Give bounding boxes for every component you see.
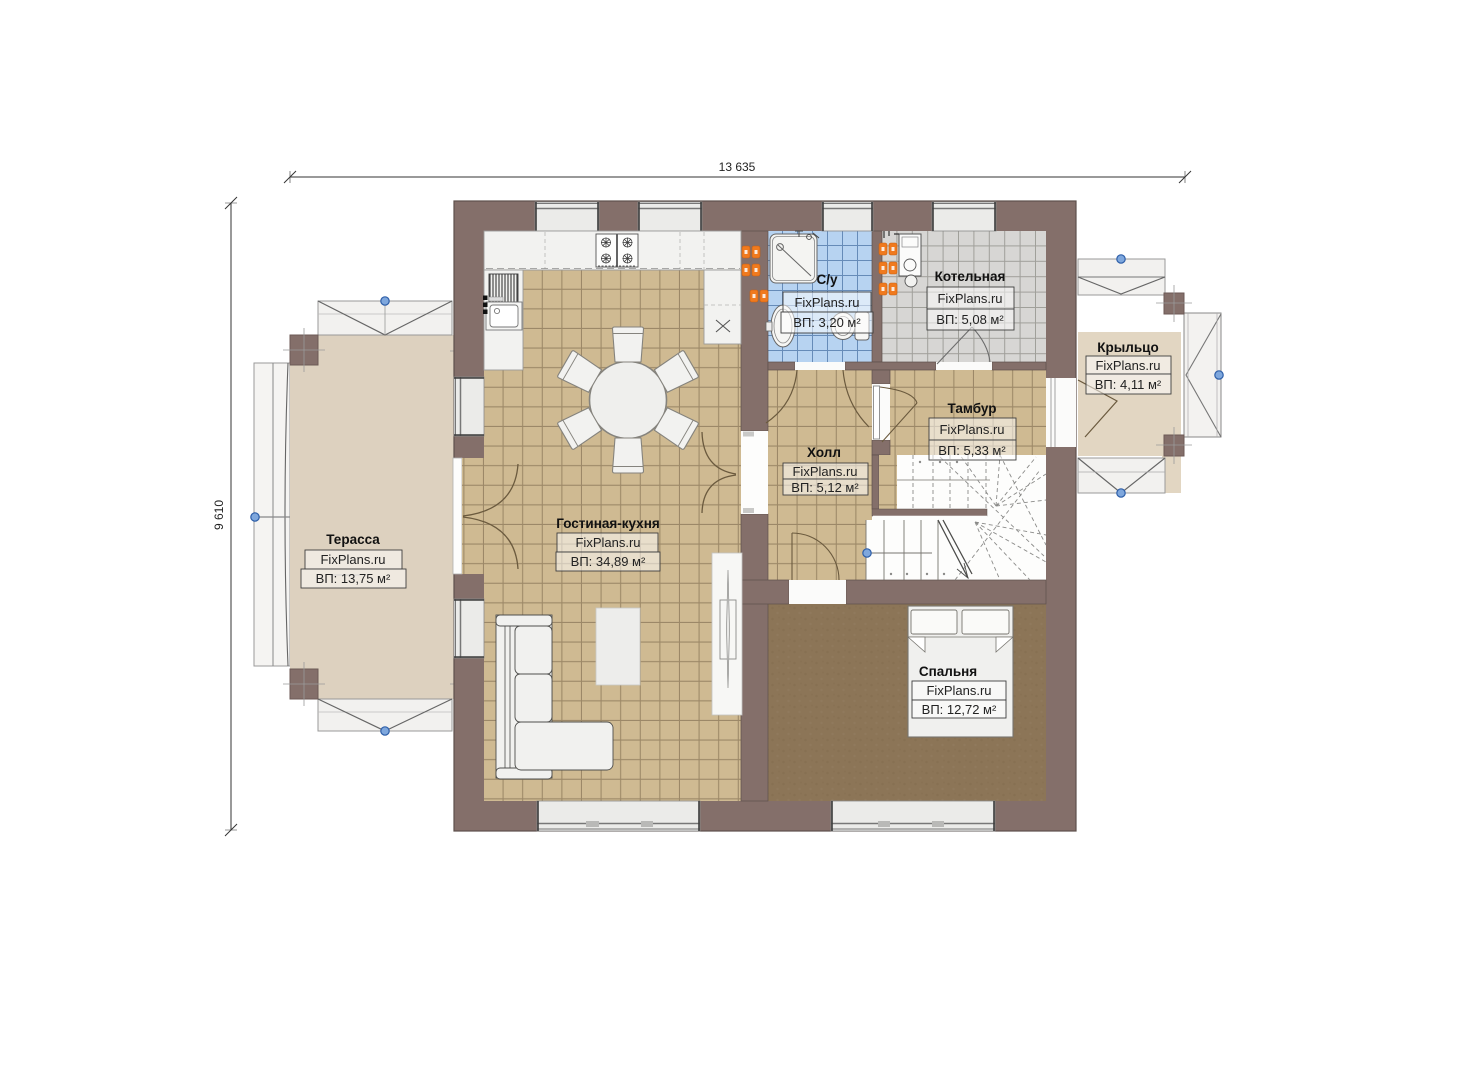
svg-text:ВП: 3,20 м²: ВП: 3,20 м² [793, 315, 861, 330]
svg-text:ВП: 34,89 м²: ВП: 34,89 м² [571, 554, 646, 569]
svg-text:9 610: 9 610 [212, 500, 226, 530]
svg-text:FixPlans.ru: FixPlans.ru [575, 535, 640, 550]
svg-text:Тамбур: Тамбур [948, 401, 997, 416]
svg-text:Терасса: Терасса [326, 532, 380, 547]
svg-text:Спальня: Спальня [919, 664, 977, 679]
svg-text:FixPlans.ru: FixPlans.ru [939, 422, 1004, 437]
svg-text:Гостиная-кухня: Гостиная-кухня [556, 516, 659, 531]
svg-text:FixPlans.ru: FixPlans.ru [794, 295, 859, 310]
svg-text:FixPlans.ru: FixPlans.ru [792, 464, 857, 479]
svg-text:ВП: 12,72 м²: ВП: 12,72 м² [922, 702, 997, 717]
svg-text:FixPlans.ru: FixPlans.ru [937, 291, 1002, 306]
svg-text:Крыльцо: Крыльцо [1097, 340, 1158, 355]
svg-text:Холл: Холл [807, 445, 841, 460]
svg-text:С/у: С/у [816, 272, 838, 287]
svg-text:ВП: 4,11 м²: ВП: 4,11 м² [1095, 377, 1162, 392]
svg-text:ВП: 5,12 м²: ВП: 5,12 м² [791, 480, 859, 495]
svg-text:FixPlans.ru: FixPlans.ru [320, 552, 385, 567]
svg-text:ВП: 13,75 м²: ВП: 13,75 м² [316, 571, 391, 586]
svg-text:ВП: 5,33 м²: ВП: 5,33 м² [938, 443, 1006, 458]
svg-text:13 635: 13 635 [719, 160, 756, 174]
svg-text:ВП: 5,08 м²: ВП: 5,08 м² [936, 312, 1004, 327]
svg-text:FixPlans.ru: FixPlans.ru [1095, 358, 1160, 373]
svg-text:FixPlans.ru: FixPlans.ru [926, 683, 991, 698]
svg-text:Котельная: Котельная [935, 269, 1006, 284]
